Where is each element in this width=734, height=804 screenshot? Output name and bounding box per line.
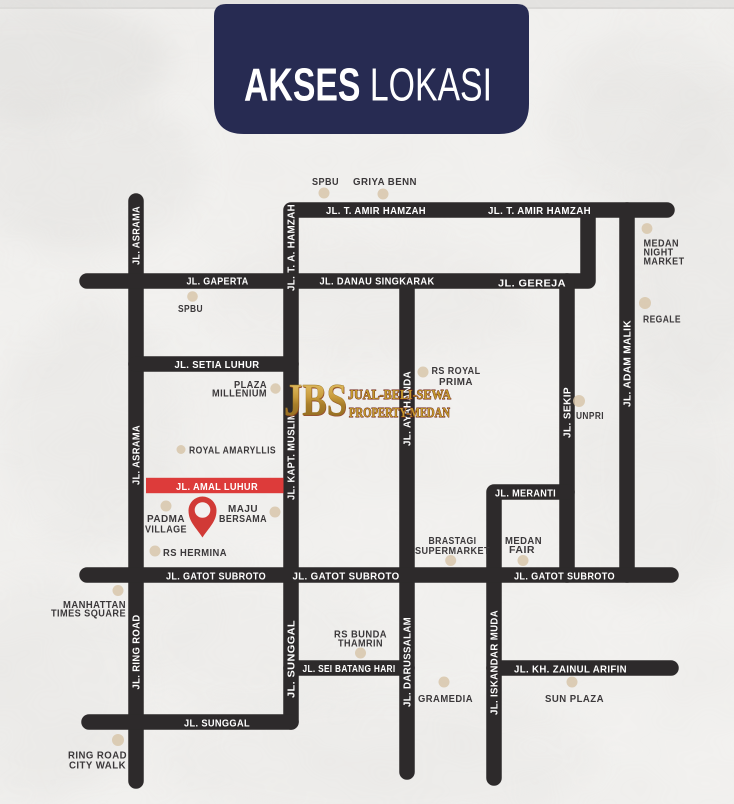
- svg-text:JL. GATOT SUBROTO: JL. GATOT SUBROTO: [166, 571, 266, 583]
- svg-text:JUAL-BELI-SEWA: JUAL-BELI-SEWA: [348, 387, 451, 402]
- svg-text:MILLENIUM: MILLENIUM: [212, 388, 267, 400]
- svg-text:FAIR: FAIR: [509, 544, 535, 556]
- svg-text:PROPERTY-MEDAN: PROPERTY-MEDAN: [349, 405, 450, 420]
- svg-text:JL. ASRAMA: JL. ASRAMA: [131, 425, 143, 485]
- svg-text:JL. T. AMIR HAMZAH: JL. T. AMIR HAMZAH: [488, 205, 591, 217]
- svg-text:SPBU: SPBU: [178, 303, 203, 315]
- svg-text:THAMRIN: THAMRIN: [338, 638, 383, 650]
- svg-text:AKSES LOKASI: AKSES LOKASI: [244, 59, 492, 111]
- svg-text:JL. MERANTI: JL. MERANTI: [495, 487, 556, 499]
- svg-text:JL. ASRAMA: JL. ASRAMA: [131, 206, 143, 265]
- svg-text:JL. SEI BATANG HARI: JL. SEI BATANG HARI: [303, 663, 396, 675]
- svg-text:JL. DARUSSALAM: JL. DARUSSALAM: [402, 617, 414, 707]
- svg-text:JL. SUNGGAL: JL. SUNGGAL: [184, 718, 250, 730]
- svg-text:GRIYA BENN: GRIYA BENN: [353, 176, 417, 188]
- svg-text:JL. ISKANDAR MUDA: JL. ISKANDAR MUDA: [489, 610, 501, 715]
- svg-text:JL. GEREJA: JL. GEREJA: [498, 278, 566, 290]
- svg-text:JL. SETIA LUHUR: JL. SETIA LUHUR: [175, 359, 260, 371]
- svg-text:CITY WALK: CITY WALK: [69, 760, 126, 772]
- svg-text:JL. SEKIP: JL. SEKIP: [562, 387, 574, 438]
- svg-text:JBS: JBS: [284, 374, 347, 425]
- svg-text:SUPERMARKET: SUPERMARKET: [415, 545, 490, 557]
- svg-text:VILLAGE: VILLAGE: [145, 524, 187, 536]
- svg-text:SUN PLAZA: SUN PLAZA: [545, 693, 604, 705]
- svg-text:RS HERMINA: RS HERMINA: [163, 547, 227, 559]
- svg-text:JL. ADAM MALIK: JL. ADAM MALIK: [622, 320, 634, 407]
- svg-text:REGALE: REGALE: [643, 314, 681, 326]
- svg-text:SPBU: SPBU: [312, 176, 339, 188]
- svg-text:JL. DANAU SINGKARAK: JL. DANAU SINGKARAK: [320, 276, 435, 288]
- svg-text:JL. T. A. HAMZAH: JL. T. A. HAMZAH: [286, 204, 298, 291]
- svg-text:ROYAL AMARYLLIS: ROYAL AMARYLLIS: [189, 445, 276, 457]
- svg-text:TIMES SQUARE: TIMES SQUARE: [51, 608, 126, 620]
- svg-text:BERSAMA: BERSAMA: [219, 513, 267, 525]
- svg-text:JL. GATOT SUBROTO: JL. GATOT SUBROTO: [514, 571, 615, 583]
- svg-text:UNPRI: UNPRI: [576, 410, 604, 422]
- svg-text:JL. KH. ZAINUL ARIFIN: JL. KH. ZAINUL ARIFIN: [514, 664, 627, 676]
- svg-text:JL. SUNGGAL: JL. SUNGGAL: [286, 620, 298, 698]
- svg-text:MARKET: MARKET: [644, 255, 685, 267]
- svg-text:JL. AMAL LUHUR: JL. AMAL LUHUR: [176, 481, 258, 493]
- svg-text:GRAMEDIA: GRAMEDIA: [418, 693, 473, 705]
- svg-text:JL. GAPERTA: JL. GAPERTA: [187, 276, 249, 288]
- svg-text:JL. T. AMIR HAMZAH: JL. T. AMIR HAMZAH: [326, 205, 426, 217]
- svg-text:JL. RING ROAD: JL. RING ROAD: [131, 614, 143, 689]
- svg-text:JL. GATOT SUBROTO: JL. GATOT SUBROTO: [293, 571, 400, 583]
